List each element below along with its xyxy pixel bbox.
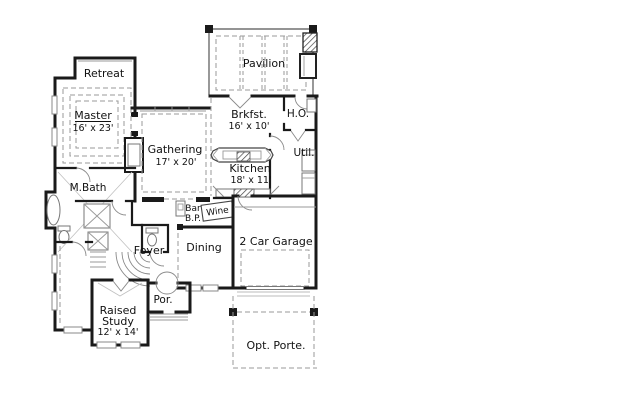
room-kitchen: Kitchen 18' x 11' — [211, 148, 279, 198]
room-label-retreat: Retreat — [84, 67, 125, 80]
room-dims-gathering: 17' x 20' — [155, 157, 196, 168]
room-label-por: Por. — [153, 294, 172, 306]
room-porte: Opt. Porte. — [229, 292, 318, 368]
butlers-pantry: Bar B.P. Wine — [176, 201, 234, 224]
room-dims-brkfst: 16' x 10' — [228, 121, 269, 132]
room-dining: Dining — [177, 224, 233, 291]
room-dims-study: 12' x 14' — [97, 327, 138, 338]
fireplace-alcove — [300, 54, 316, 78]
room-label-kitchen: Kitchen — [229, 162, 270, 175]
room-study: Raised Study 12' x 14' — [92, 280, 148, 348]
room-label-garage: 2 Car Garage — [239, 235, 312, 248]
room-label-util: Util. — [294, 147, 315, 159]
side-porch — [55, 242, 106, 333]
room-label-master: Master — [74, 109, 112, 122]
room-label-gathering: Gathering — [148, 143, 203, 156]
room-label-foyer: Foyer — [134, 244, 165, 257]
floor-plan-page: Pavilion Retreat Master 16' x 23' — [0, 0, 620, 415]
room-label-pavilion: Pavilion — [243, 57, 285, 70]
room-label-mbath: M.Bath — [70, 182, 107, 194]
room-brkfst: Brkfst. 16' x 10' — [228, 108, 269, 132]
tub — [47, 195, 60, 225]
room-garage: 2 Car Garage — [233, 196, 316, 290]
room-por: Por. — [148, 272, 190, 320]
room-foyer: Foyer — [116, 225, 168, 286]
room-dims-kitchen: 18' x 11' — [230, 175, 271, 186]
room-pavilion: Pavilion — [205, 25, 317, 95]
room-label-bar: Bar — [185, 204, 201, 214]
room-label-bp: B.P. — [185, 214, 201, 224]
room-label-ho: H.O. — [287, 108, 309, 120]
room-label-brkfst: Brkfst. — [231, 108, 267, 121]
grill-fixture — [303, 33, 317, 52]
floor-plan-drawing: Pavilion Retreat Master 16' x 23' — [0, 0, 620, 415]
bar-counter — [176, 201, 185, 216]
room-label-porte: Opt. Porte. — [246, 339, 305, 352]
room-label-dining: Dining — [186, 241, 222, 254]
wine-closet: Wine — [201, 201, 234, 221]
room-dims-master: 16' x 23' — [72, 123, 113, 134]
cooktop — [237, 152, 250, 161]
room-ho: H.O. — [284, 96, 316, 141]
